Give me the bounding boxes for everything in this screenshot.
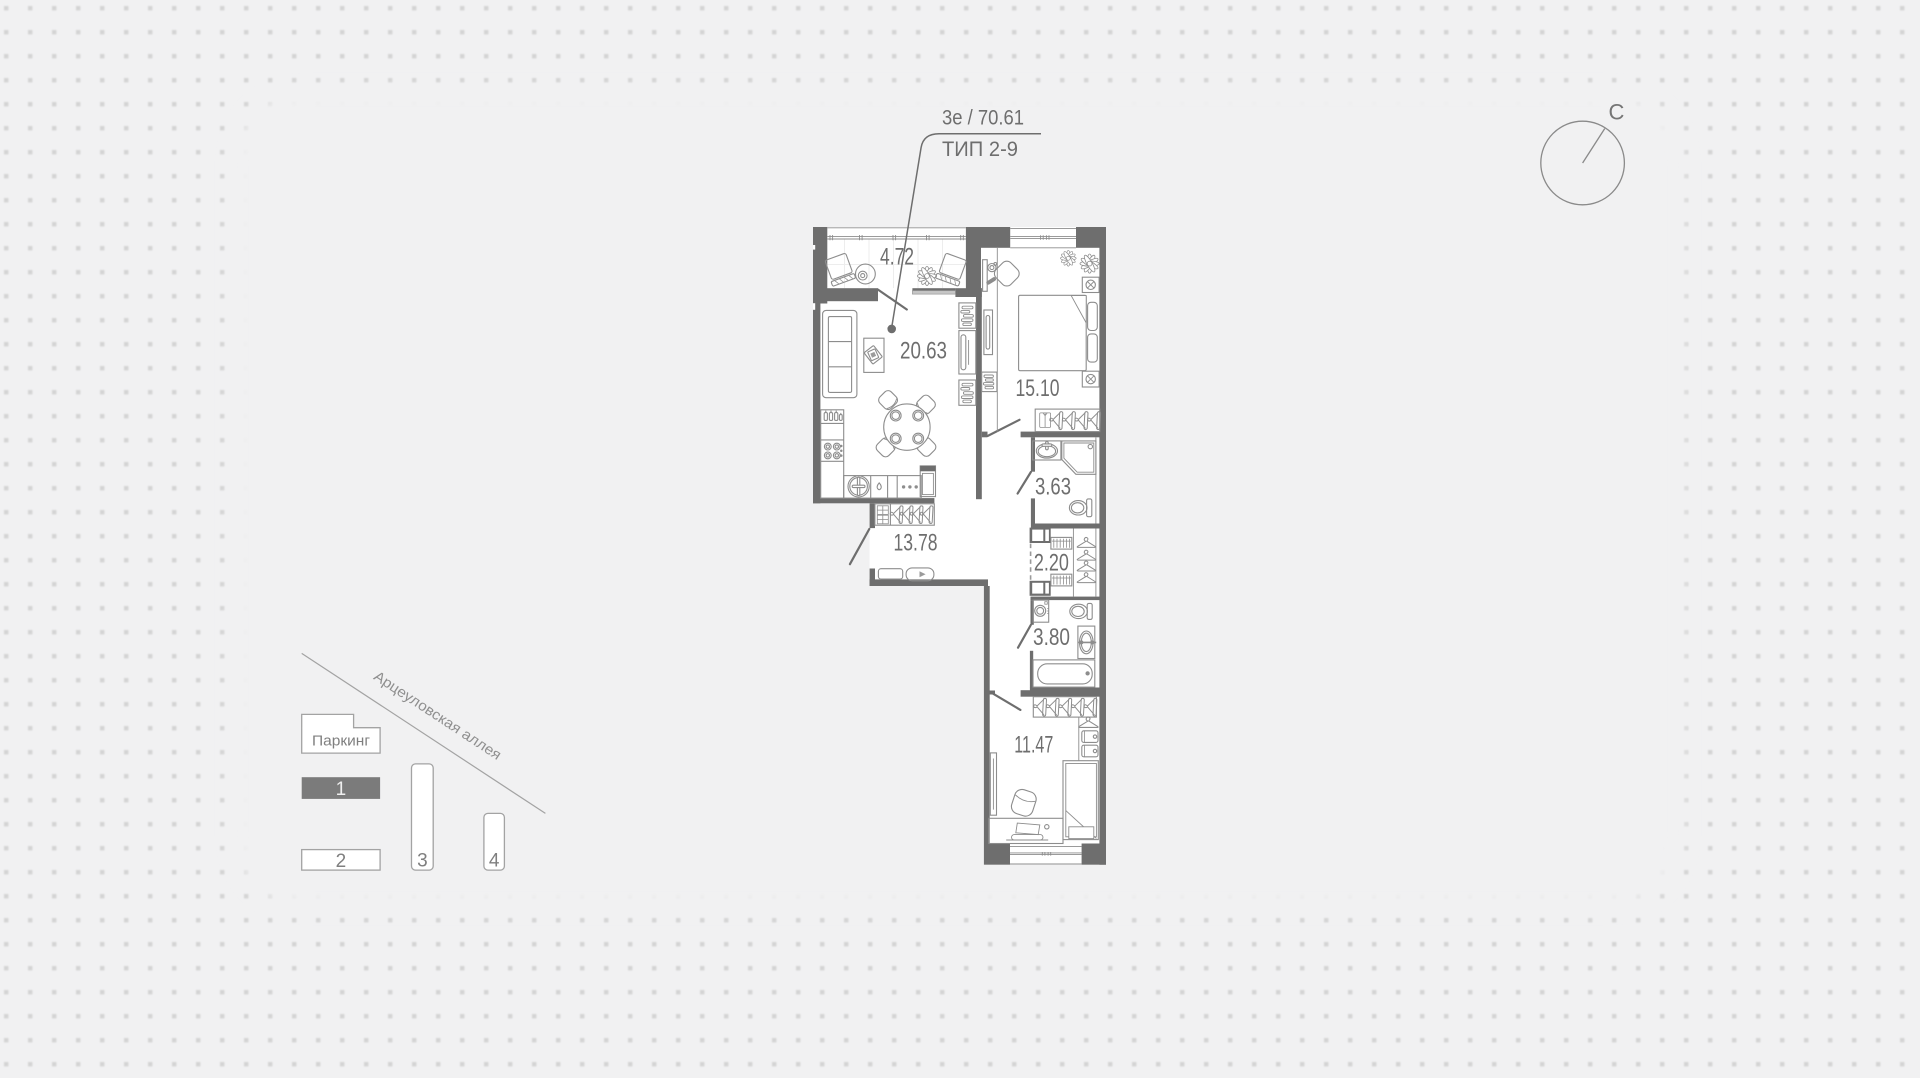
svg-text:2.20: 2.20 [1034,549,1069,576]
svg-text:С: С [1609,100,1625,125]
svg-text:4.72: 4.72 [880,244,914,271]
svg-text:11.47: 11.47 [1014,731,1053,758]
svg-text:4: 4 [489,851,500,872]
svg-text:2: 2 [336,851,347,872]
svg-text:3е / 70.61: 3е / 70.61 [942,107,1024,130]
svg-text:3: 3 [417,851,428,872]
svg-text:15.10: 15.10 [1016,375,1060,402]
svg-text:3.80: 3.80 [1033,624,1070,651]
svg-text:3.63: 3.63 [1035,473,1071,500]
svg-text:20.63: 20.63 [900,338,947,365]
svg-text:13.78: 13.78 [894,530,938,557]
svg-text:1: 1 [336,779,347,800]
svg-text:Паркинг: Паркинг [312,732,371,749]
svg-text:ТИП 2-9: ТИП 2-9 [942,138,1018,161]
